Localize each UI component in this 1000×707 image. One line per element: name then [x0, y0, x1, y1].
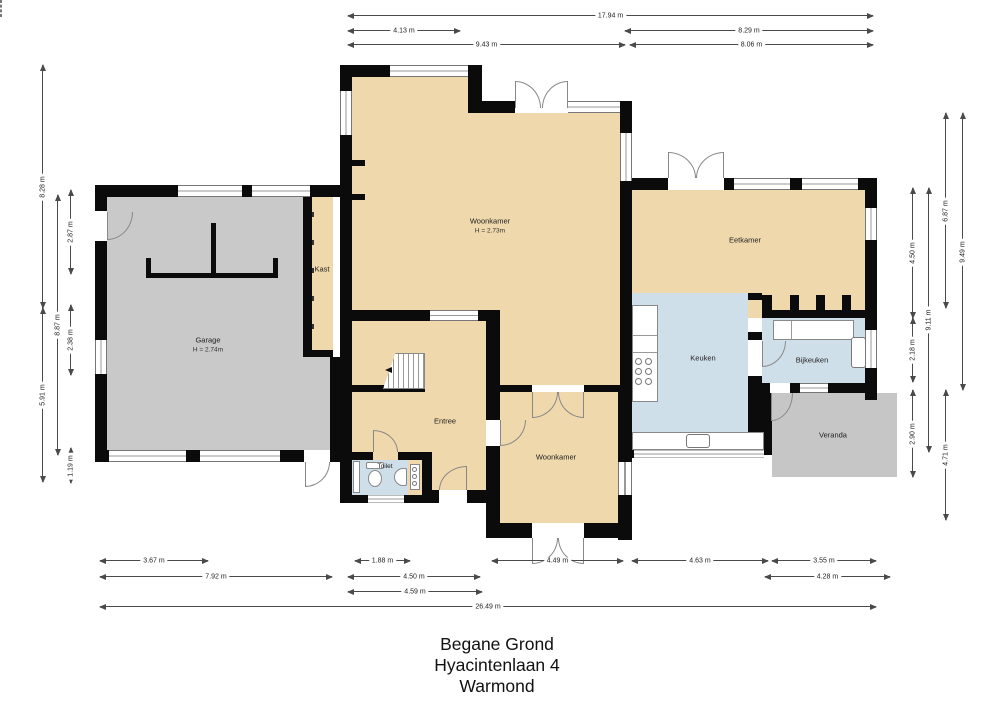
dimension-line: 1.19 m — [70, 448, 71, 483]
dimension-line: 2.18 m — [912, 318, 913, 382]
room-label-garage: Garage H = 2.74m — [193, 335, 223, 356]
counter-divider — [633, 352, 657, 353]
door-arc-garage-back — [305, 462, 330, 487]
room-name: Eetkamer — [729, 235, 761, 244]
room-label-keuken: Keuken — [690, 352, 715, 363]
window — [430, 310, 478, 321]
window — [200, 450, 280, 462]
stove-burner — [635, 358, 642, 365]
toilet-bowl — [368, 470, 382, 487]
counter-divider — [791, 321, 792, 339]
stove-burner — [645, 368, 652, 375]
wall-segment — [486, 321, 500, 420]
stove-burner — [635, 378, 642, 385]
dimension-line: 2.90 m — [912, 390, 913, 477]
dimension-line: 3.67 m — [100, 560, 208, 561]
wall-segment — [340, 452, 373, 460]
window — [95, 340, 107, 374]
room-height: H = 2.73m — [470, 227, 510, 237]
dimension-line: 3.55 m — [772, 560, 876, 561]
garage-symbol — [146, 258, 151, 273]
wall-segment — [865, 178, 877, 208]
wall-segment — [186, 450, 200, 462]
window — [390, 65, 468, 77]
window — [865, 208, 877, 240]
kast-tick — [312, 296, 314, 301]
room-label-toilet: Toilet — [377, 462, 392, 472]
window — [865, 330, 877, 368]
room-garage-floor — [107, 197, 303, 450]
counter-divider — [633, 335, 657, 336]
wall-stub — [790, 295, 799, 318]
dimension-line: 4.13 m — [348, 30, 460, 31]
wall-segment — [632, 178, 668, 190]
kitchen-sink — [686, 434, 710, 448]
door-arc-eetkamer-double-right — [696, 152, 724, 178]
room-name: Veranda — [819, 430, 847, 439]
window — [252, 185, 310, 197]
wall-segment — [467, 490, 500, 503]
dimension-line: 7.92 m — [100, 576, 332, 577]
wall-segment — [478, 310, 500, 321]
wall-segment — [95, 241, 107, 340]
floor-plan: Garage H = 2.74m Kast Woonkamer H = 2.73… — [0, 0, 1000, 707]
wall-segment — [310, 185, 343, 197]
wall-segment — [584, 385, 632, 392]
wall-segment — [584, 523, 632, 538]
room-garage-floor — [303, 357, 330, 450]
window — [634, 450, 764, 458]
window — [109, 450, 186, 462]
toilet-sink — [394, 468, 407, 486]
wall-segment — [280, 450, 304, 462]
dimension-line: 4.71 m — [945, 390, 946, 520]
kitchen-counter-left — [632, 305, 658, 402]
dimension-line: 4.50 m — [912, 188, 913, 318]
window — [620, 133, 632, 181]
cabinet-knob — [412, 474, 417, 479]
garage-symbol — [146, 273, 278, 278]
room-name: Keuken — [690, 353, 715, 362]
room-label-eetkamer: Eetkamer — [729, 234, 761, 245]
room-name: Garage — [195, 336, 220, 345]
dimension-line: 1.88 m — [355, 560, 410, 561]
title-floor: Begane Grond — [434, 634, 560, 655]
window — [178, 185, 242, 197]
dimension-line: 8.28 m — [42, 65, 43, 308]
wall-segment — [340, 65, 390, 77]
plan-title: Begane Grond Hyacintenlaan 4 Warmond — [434, 634, 560, 697]
dimension-line: 4.59 m — [348, 591, 482, 592]
toilet-door-slab — [353, 461, 360, 493]
room-label-entree: Entree — [434, 415, 456, 426]
bijkeuken-counter — [773, 320, 854, 340]
wall-segment — [242, 185, 252, 197]
window — [368, 495, 404, 503]
dimension-line: 2.38 m — [70, 305, 71, 375]
dimension-line: 5.91 m — [42, 308, 43, 482]
wall-segment — [748, 293, 762, 300]
wall-segment — [340, 135, 352, 392]
wall-segment — [748, 332, 762, 340]
dimension-line: 4.49 m — [492, 560, 623, 561]
dimension-line: 8.06 m — [630, 44, 873, 45]
dimension-line: 2.87 m — [70, 190, 71, 274]
room-name: Bijkeuken — [796, 355, 829, 364]
room-name: Woonkamer — [536, 452, 576, 461]
wall-segment — [340, 495, 368, 503]
dimension-line: 9.49 m — [962, 113, 963, 390]
kast-tick — [312, 240, 314, 245]
wall-segment — [468, 101, 515, 113]
door-arc-woonkamer-double-right — [542, 81, 568, 108]
wall-segment — [486, 523, 532, 538]
wall-stub — [352, 160, 365, 166]
wall-stub — [842, 295, 851, 318]
wall-segment — [340, 310, 430, 321]
stove-burner — [635, 368, 642, 375]
window — [734, 178, 790, 190]
title-city: Warmond — [434, 676, 560, 697]
wall-segment — [762, 383, 770, 393]
garage-symbol — [211, 223, 216, 276]
dimension-line: 8.87 m — [57, 195, 58, 455]
room-label-veranda: Veranda — [819, 429, 847, 440]
room-label-woonkamer2: Woonkamer — [536, 451, 576, 462]
wall-segment — [790, 383, 800, 393]
window — [568, 101, 620, 113]
wall-segment — [404, 495, 432, 503]
stove-burner — [645, 358, 652, 365]
wall-segment — [340, 392, 352, 503]
bijkeuken-sink — [851, 337, 866, 368]
cabinet-knob — [412, 481, 417, 486]
room-label-woonkamer: Woonkamer H = 2.73m — [470, 216, 510, 237]
wall-segment — [790, 178, 802, 190]
wall-segment — [828, 383, 877, 393]
kast-tick — [312, 212, 314, 217]
window — [800, 383, 828, 393]
room-name: Toilet — [377, 463, 392, 470]
dimension-line: 9.11 m — [928, 188, 929, 452]
wall-opening-dashed — [0, 0, 2, 17]
dimension-line: 6.87 m — [945, 113, 946, 308]
window — [340, 91, 352, 135]
dimension-line: 26.49 m — [100, 606, 876, 607]
room-height: H = 2.74m — [193, 346, 223, 356]
window — [618, 462, 632, 495]
wall-segment — [486, 385, 532, 392]
dimension-line: 8.29 m — [625, 30, 873, 31]
stair-direction-arrow — [385, 367, 392, 373]
wall-stub — [816, 295, 825, 318]
wall-segment — [95, 450, 109, 462]
wall-segment — [432, 490, 439, 503]
dimension-line: 4.50 m — [348, 576, 480, 577]
wall-segment — [486, 446, 500, 526]
wall-stub — [352, 194, 365, 200]
garage-symbol — [273, 258, 278, 273]
wall-segment — [303, 197, 312, 357]
wall-stub — [762, 295, 772, 318]
wall-segment — [724, 178, 734, 190]
room-woonkamer-floor — [352, 77, 480, 310]
room-label-kast: Kast — [314, 263, 329, 274]
dimension-line: 17.94 m — [348, 15, 873, 16]
wall-segment — [620, 181, 632, 393]
title-address: Hyacintenlaan 4 — [434, 655, 560, 676]
wall-segment — [303, 350, 333, 357]
room-name: Woonkamer — [470, 217, 510, 226]
stove-burner — [645, 378, 652, 385]
wall-segment — [865, 240, 877, 330]
dimension-line: 9.43 m — [348, 44, 625, 45]
window — [802, 178, 858, 190]
room-name: Entree — [434, 416, 456, 425]
wall-segment — [95, 185, 178, 197]
cabinet-knob — [412, 467, 417, 472]
wall-segment — [620, 101, 632, 133]
door-arc-eetkamer-double-left — [668, 152, 696, 178]
room-label-bijkeuken: Bijkeuken — [796, 354, 829, 365]
dimension-line: 4.28 m — [765, 576, 890, 577]
dimension-line: 4.63 m — [632, 560, 768, 561]
room-name: Kast — [314, 264, 329, 273]
door-arc-woonkamer-double-left — [515, 81, 541, 108]
wall-segment — [95, 374, 107, 462]
kast-tick — [312, 324, 314, 329]
